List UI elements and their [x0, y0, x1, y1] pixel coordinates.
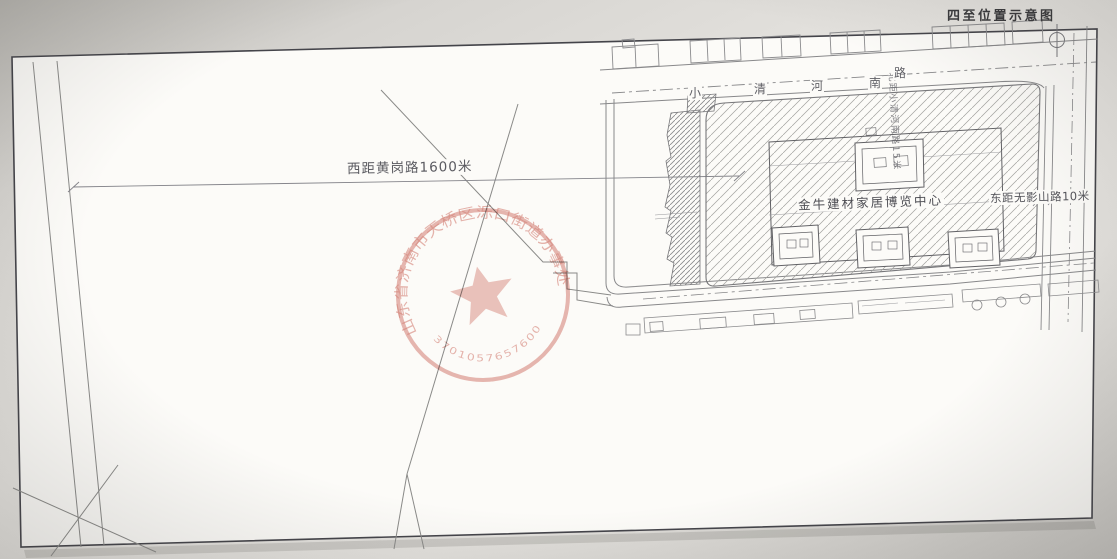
- map-title: 四至位置示意图: [947, 5, 1056, 24]
- road-name-char: 南: [868, 74, 882, 91]
- road-char-text: 南: [868, 76, 882, 90]
- seal-star-icon: [446, 260, 519, 328]
- east-distance-label: 东距无影山路10米: [989, 188, 1091, 207]
- road-name-char: 河: [810, 77, 824, 94]
- west-distance-text: 西距黄岗路1600米: [346, 159, 474, 178]
- road-char-text: 小: [688, 86, 702, 100]
- official-seal: 山东省济南市天桥区泺口街道办事处 3701057657600: [377, 189, 588, 400]
- scanned-document: 四至位置示意图 西距黄岗路1600米 北距小清河南路15米 东距无影山路10米 …: [0, 0, 1117, 559]
- west-distance-label: 西距黄岗路1600米: [346, 155, 474, 178]
- road-name-char: 路: [893, 64, 907, 81]
- road-char-text: 清: [753, 82, 767, 96]
- east-distance-text: 东距无影山路10米: [989, 189, 1091, 206]
- road-char-text: 河: [810, 79, 824, 93]
- road-char-text: 路: [893, 66, 907, 80]
- road-name-char: 小: [688, 84, 702, 101]
- road-name-char: 清: [753, 80, 767, 97]
